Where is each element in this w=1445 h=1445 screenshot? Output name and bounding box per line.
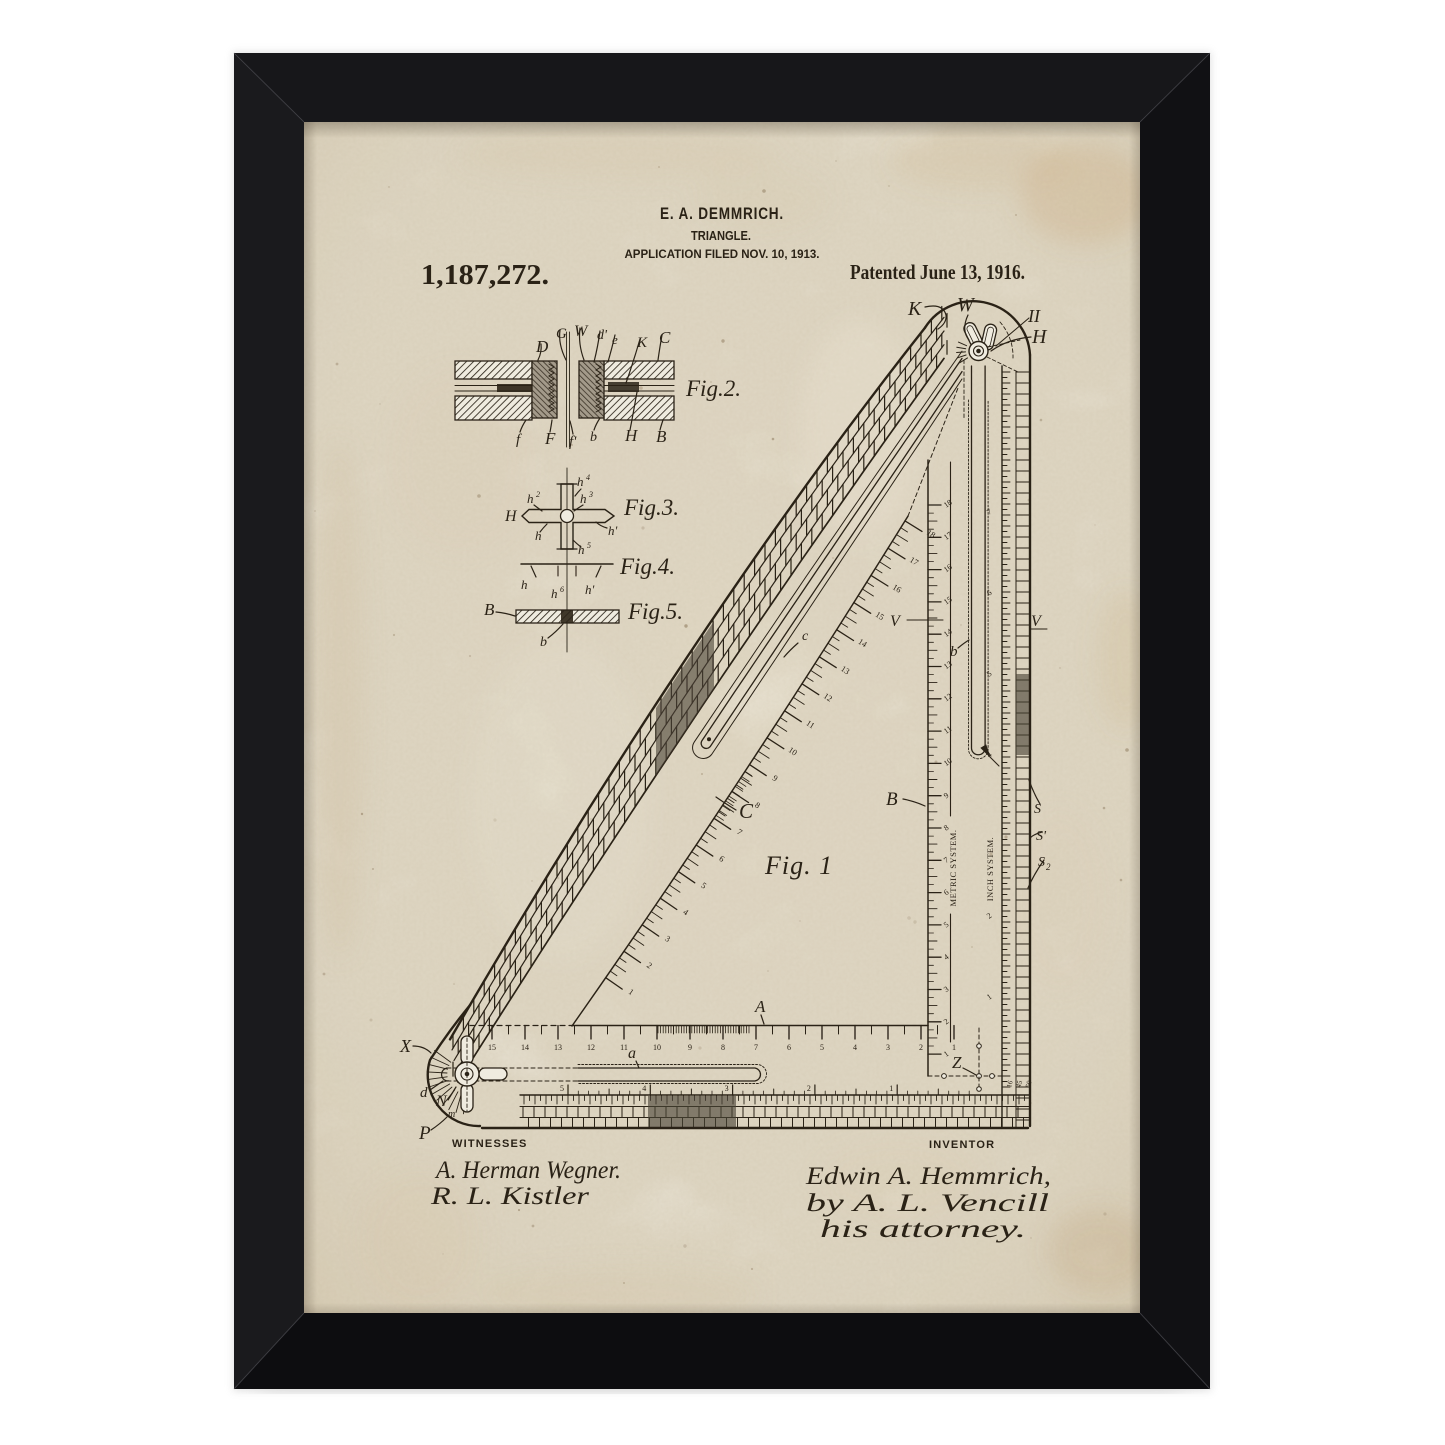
svg-text:H: H xyxy=(504,508,518,525)
svg-text:a: a xyxy=(628,1045,636,1062)
svg-text:3: 3 xyxy=(725,1084,729,1093)
svg-text:INVENTOR: INVENTOR xyxy=(929,1139,995,1151)
svg-text:2: 2 xyxy=(807,1084,811,1093)
svg-text:1: 1 xyxy=(889,1084,893,1093)
svg-text:H: H xyxy=(624,426,639,445)
svg-text:d: d xyxy=(420,1085,428,1101)
svg-text:3: 3 xyxy=(886,1043,890,1052)
svg-text:INCH SYSTEM.: INCH SYSTEM. xyxy=(985,837,995,902)
svg-text:11: 11 xyxy=(620,1043,628,1052)
svg-text:Edwin A. Hemmrich,: Edwin A. Hemmrich, xyxy=(805,1163,1051,1190)
svg-text:h: h xyxy=(527,491,534,506)
svg-text:4: 4 xyxy=(586,473,590,482)
svg-text:m: m xyxy=(448,1109,455,1120)
svg-text:1: 1 xyxy=(952,1043,956,1052)
svg-text:A. Herman Wegner.: A. Herman Wegner. xyxy=(434,1157,621,1184)
svg-text:METRIC SYSTEM.: METRIC SYSTEM. xyxy=(948,830,958,907)
svg-text:2: 2 xyxy=(919,1043,923,1052)
svg-text:E. A. DEMMRICH.: E. A. DEMMRICH. xyxy=(660,204,784,223)
svg-text:c: c xyxy=(802,629,809,644)
svg-text:6: 6 xyxy=(787,1043,791,1052)
svg-text:P: P xyxy=(418,1123,431,1144)
svg-text:10: 10 xyxy=(653,1043,661,1052)
svg-text:by A. L. Vencill: by A. L. Vencill xyxy=(806,1190,1049,1217)
svg-text:B: B xyxy=(484,600,495,619)
svg-text:TRIANGLE.: TRIANGLE. xyxy=(691,228,751,243)
svg-text:b: b xyxy=(590,430,597,445)
svg-text:h: h xyxy=(578,542,585,557)
svg-text:13: 13 xyxy=(554,1043,562,1052)
svg-text:3: 3 xyxy=(588,490,593,499)
svg-text:h: h xyxy=(580,491,587,506)
svg-text:N: N xyxy=(435,1093,448,1110)
svg-text:S': S' xyxy=(1036,829,1047,844)
svg-text:b: b xyxy=(950,644,958,660)
svg-text:h: h xyxy=(535,528,542,543)
svg-text:W: W xyxy=(957,294,976,316)
svg-text:Fig.2.: Fig.2. xyxy=(685,376,741,401)
svg-text:A: A xyxy=(754,997,766,1016)
svg-text:C: C xyxy=(739,799,754,823)
svg-text:2: 2 xyxy=(536,490,540,499)
svg-text:12: 12 xyxy=(587,1043,595,1052)
svg-text:K: K xyxy=(907,298,923,320)
svg-text:H: H xyxy=(1031,326,1048,348)
svg-text:W: W xyxy=(574,323,589,340)
svg-text:15: 15 xyxy=(488,1043,496,1052)
svg-text:h': h' xyxy=(608,523,618,538)
svg-text:h': h' xyxy=(585,582,595,597)
svg-text:Fig.4.: Fig.4. xyxy=(619,554,675,579)
svg-text:5: 5 xyxy=(560,1084,564,1093)
svg-text:B: B xyxy=(656,427,667,446)
svg-text:1,187,272.: 1,187,272. xyxy=(421,260,549,291)
svg-text:9: 9 xyxy=(688,1043,692,1052)
svg-text:R. L. Kistler: R. L. Kistler xyxy=(430,1183,590,1210)
svg-text:h: h xyxy=(521,577,528,592)
svg-text:f': f' xyxy=(569,434,577,450)
svg-text:his attorney.: his attorney. xyxy=(820,1216,1026,1243)
svg-text:Fig. 1: Fig. 1 xyxy=(764,851,833,880)
svg-text:D: D xyxy=(535,337,549,356)
svg-text:B: B xyxy=(886,789,898,810)
svg-text:14: 14 xyxy=(521,1043,529,1052)
svg-text:6: 6 xyxy=(560,585,564,594)
svg-text:2: 2 xyxy=(1046,862,1051,872)
svg-text:8: 8 xyxy=(721,1043,725,1052)
svg-text:WITNESSES: WITNESSES xyxy=(452,1138,528,1150)
svg-text:Fig.5.: Fig.5. xyxy=(627,599,683,624)
svg-text:X: X xyxy=(399,1036,412,1056)
svg-text:b: b xyxy=(540,635,547,650)
svg-text:7: 7 xyxy=(754,1043,758,1052)
svg-text:Z: Z xyxy=(952,1053,962,1072)
svg-text:Fig.3.: Fig.3. xyxy=(623,495,679,520)
svg-text:II: II xyxy=(1027,306,1041,326)
svg-text:h: h xyxy=(577,474,584,489)
svg-text:h: h xyxy=(551,586,558,601)
svg-text:G: G xyxy=(556,326,567,342)
svg-text:Patented June 13, 1916.: Patented June 13, 1916. xyxy=(850,260,1025,284)
svg-text:5: 5 xyxy=(820,1043,824,1052)
svg-text:APPLICATION FILED NOV. 10, 191: APPLICATION FILED NOV. 10, 1913. xyxy=(625,247,820,261)
svg-text:4: 4 xyxy=(642,1084,646,1093)
svg-text:5: 5 xyxy=(587,541,591,550)
svg-text:4: 4 xyxy=(853,1043,857,1052)
